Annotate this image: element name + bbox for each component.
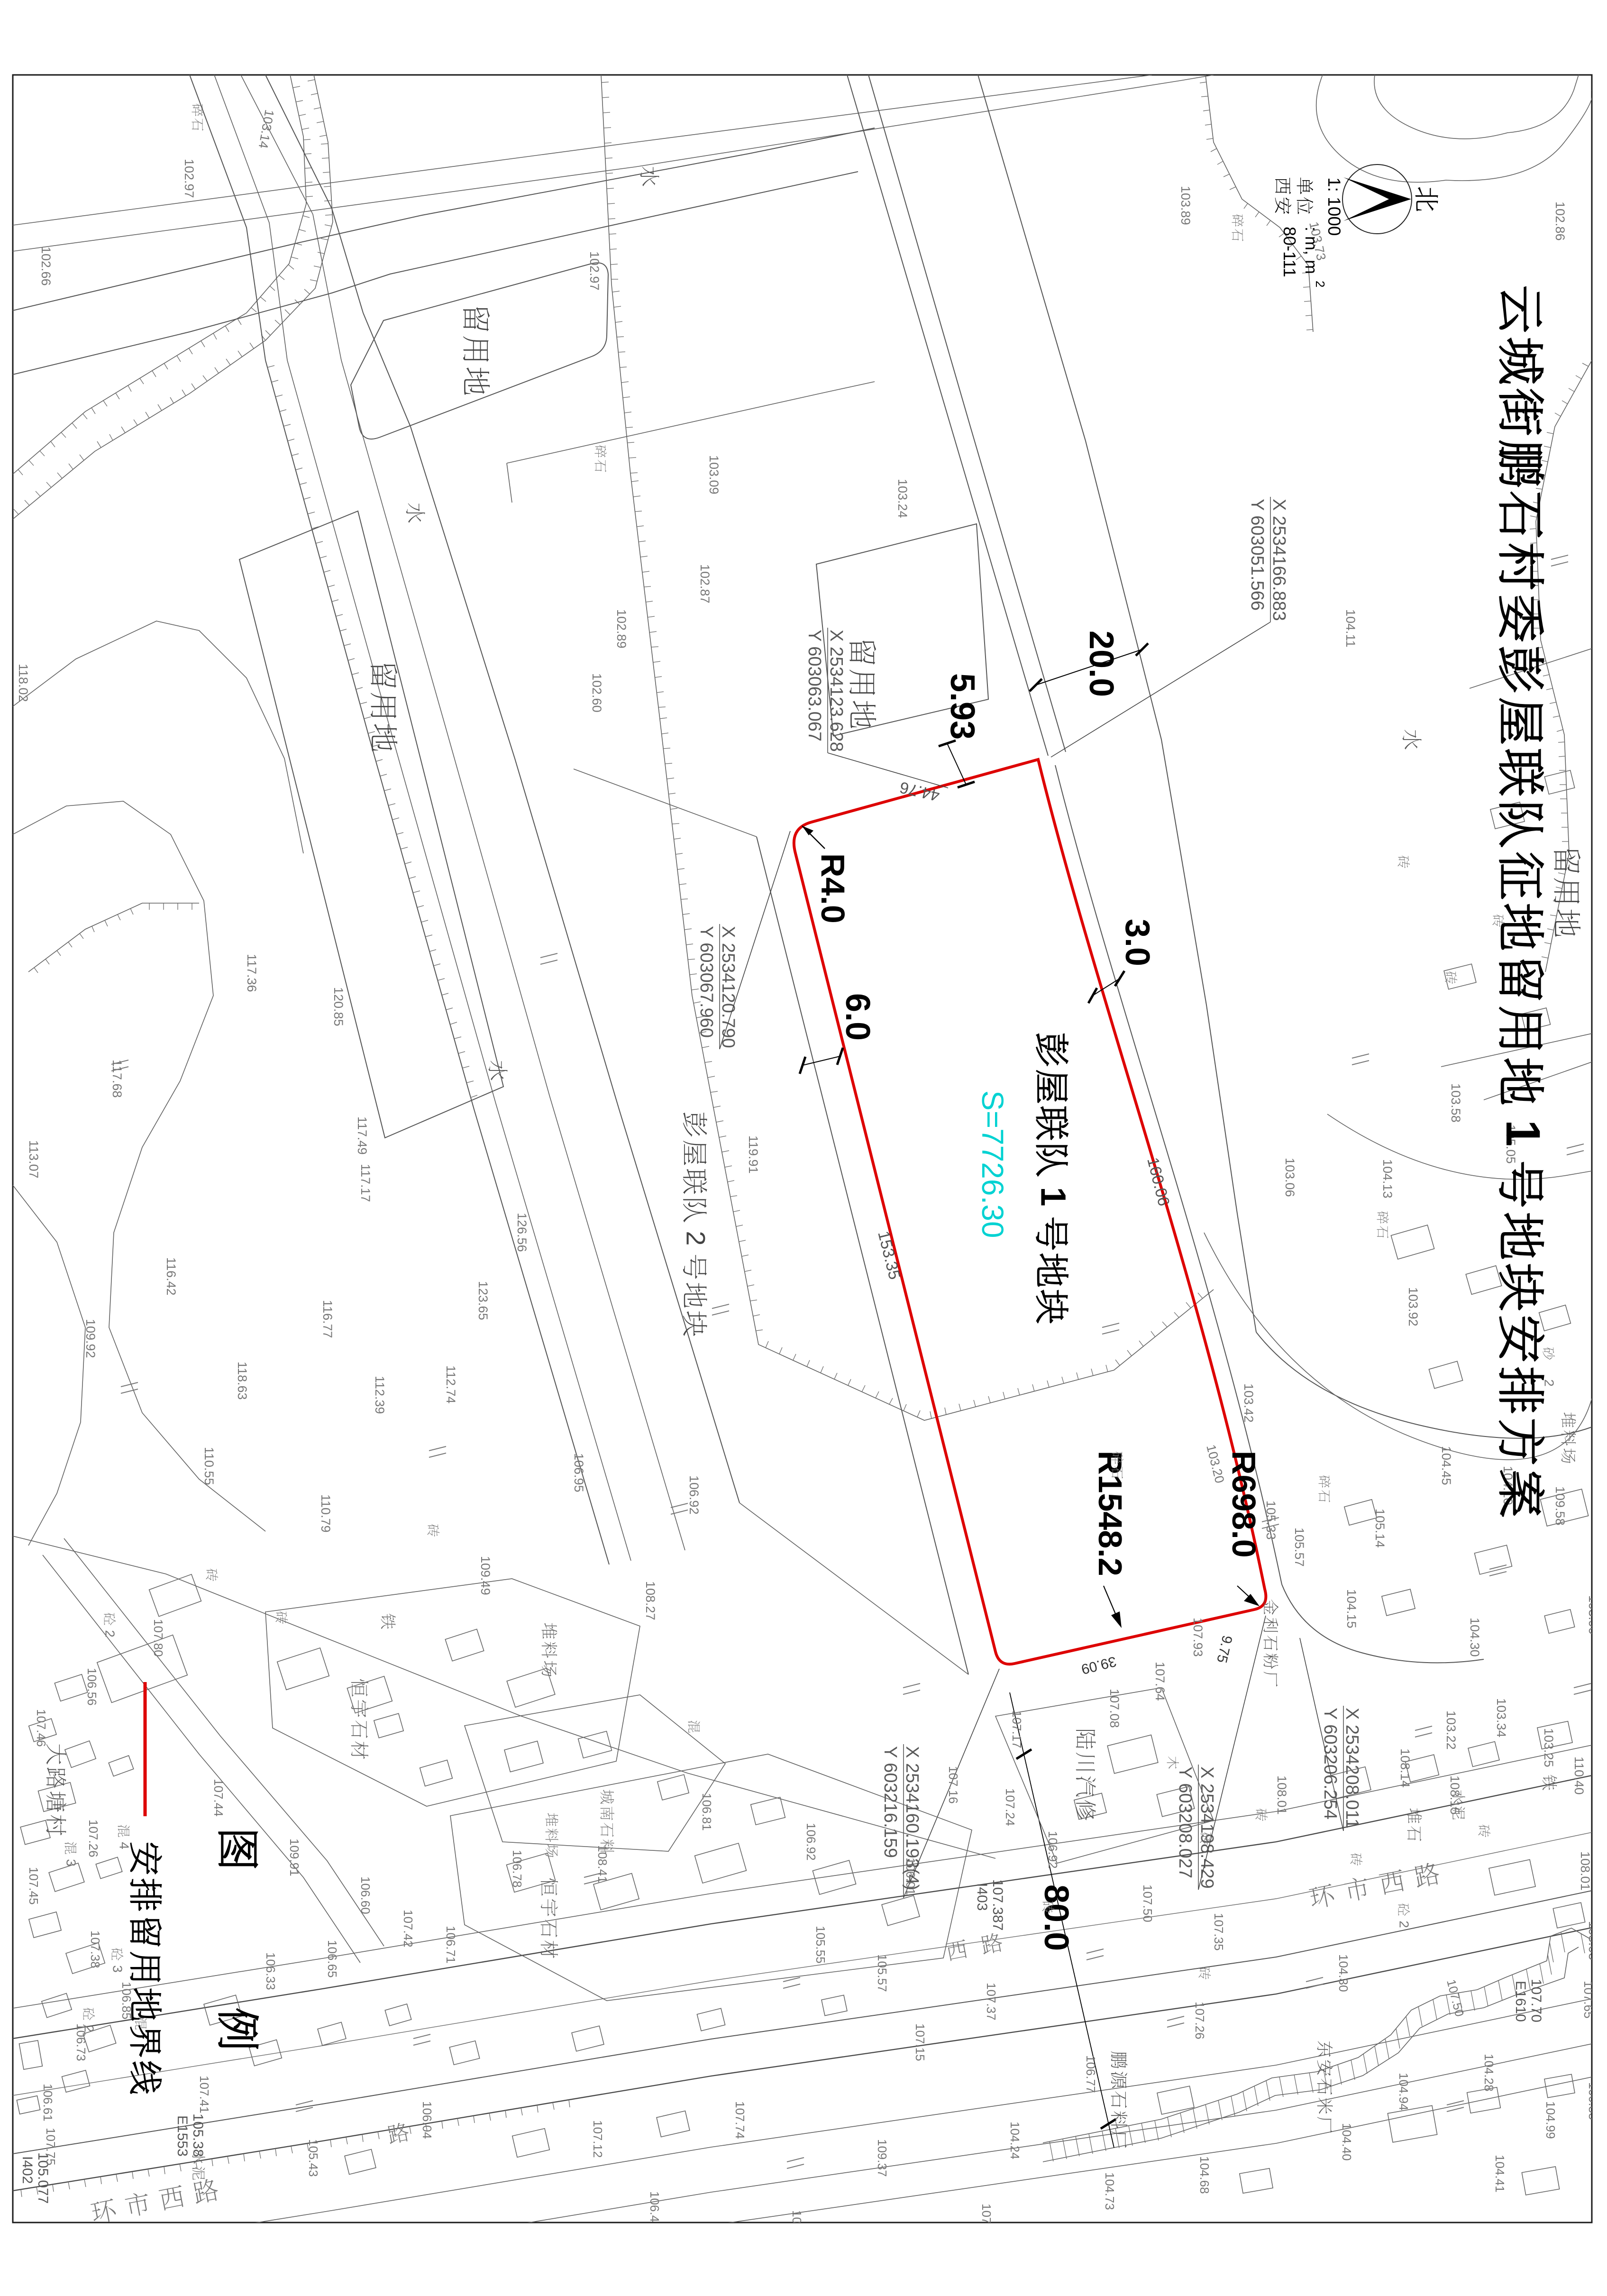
- svg-text:108.01: 108.01: [1578, 1851, 1592, 1891]
- svg-text:106.78: 106.78: [510, 1850, 524, 1888]
- svg-text:107.16: 107.16: [946, 1766, 960, 1804]
- svg-text:102.86: 102.86: [1553, 201, 1567, 241]
- svg-text:3.0: 3.0: [1118, 919, 1156, 966]
- svg-text:113.07: 113.07: [27, 1140, 41, 1179]
- svg-text:: m, m: : m, m: [1302, 227, 1321, 274]
- svg-text:3: 3: [64, 1859, 79, 1866]
- svg-text:105.43: 105.43: [306, 2139, 320, 2177]
- svg-text:107.12: 107.12: [591, 2120, 605, 2158]
- svg-text:103.09: 103.09: [707, 455, 721, 494]
- svg-text:106.01: 106.01: [904, 1857, 918, 1895]
- svg-text:102.89: 102.89: [614, 609, 629, 649]
- svg-text:102.97: 102.97: [587, 251, 602, 291]
- svg-text:118.63: 118.63: [235, 1362, 249, 1400]
- svg-text:117.68: 117.68: [110, 1060, 124, 1098]
- svg-text:103.58: 103.58: [1449, 1083, 1463, 1123]
- svg-text:118.02: 118.02: [16, 664, 30, 702]
- svg-text:104.73: 104.73: [1103, 2172, 1117, 2210]
- svg-text:107.17: 107.17: [1010, 1711, 1024, 1748]
- svg-text:105.57: 105.57: [1292, 1528, 1306, 1567]
- svg-text:107.38: 107.38: [88, 1930, 102, 1968]
- svg-text:116.42: 116.42: [164, 1257, 178, 1296]
- svg-text:106.71: 106.71: [444, 1926, 458, 1964]
- svg-text:107.35: 107.35: [1212, 1913, 1226, 1951]
- svg-text:107.74: 107.74: [733, 2101, 747, 2139]
- svg-text:104.24: 104.24: [1008, 2122, 1022, 2159]
- svg-text:104.94: 104.94: [1397, 2073, 1411, 2111]
- svg-text:106.92: 106.92: [687, 1475, 701, 1515]
- svg-text:102.97: 102.97: [182, 159, 196, 198]
- svg-text:104.40: 104.40: [1340, 2123, 1354, 2161]
- svg-text:X 2534166.883: X 2534166.883: [1269, 499, 1289, 621]
- svg-text:104.30: 104.30: [1468, 1618, 1482, 1657]
- svg-text:3: 3: [110, 1965, 125, 1973]
- svg-text:107.24: 107.24: [1003, 1788, 1017, 1826]
- svg-text:107.26: 107.26: [1193, 2002, 1207, 2040]
- svg-text:R4.0: R4.0: [814, 853, 851, 924]
- svg-text:104.45: 104.45: [1439, 1446, 1453, 1485]
- svg-text:107.37: 107.37: [984, 1983, 998, 2021]
- svg-text:Y 603063.067: Y 603063.067: [804, 630, 824, 741]
- svg-text:103.24: 103.24: [895, 479, 910, 518]
- svg-text:5.93: 5.93: [943, 673, 981, 740]
- svg-text:109.37: 109.37: [875, 2139, 889, 2177]
- svg-text:103.22: 103.22: [1444, 1711, 1458, 1750]
- svg-text:6.0: 6.0: [839, 993, 877, 1041]
- svg-text:106.60: 106.60: [358, 1876, 373, 1914]
- svg-text:103.25: 103.25: [1542, 1728, 1556, 1767]
- svg-text:105.38: 105.38: [190, 2113, 206, 2157]
- svg-text:I402: I402: [19, 2156, 35, 2184]
- svg-text:112.39: 112.39: [373, 1376, 387, 1414]
- svg-text:E1610: E1610: [1513, 1981, 1528, 2022]
- svg-text:120.85: 120.85: [331, 987, 346, 1026]
- svg-text:126.56: 126.56: [515, 1213, 529, 1252]
- svg-text:80-111: 80-111: [1280, 227, 1299, 277]
- svg-text:119.91: 119.91: [746, 1135, 760, 1174]
- svg-text:104.11: 104.11: [1343, 609, 1358, 648]
- svg-text:X 2534120.790: X 2534120.790: [718, 926, 738, 1048]
- svg-text:106.77: 106.77: [1084, 2055, 1098, 2093]
- svg-text:80.0: 80.0: [1037, 1884, 1075, 1951]
- svg-text:107.46: 107.46: [34, 1709, 48, 1747]
- svg-text:108.41: 108.41: [595, 1845, 610, 1883]
- svg-text:103.89: 103.89: [1178, 186, 1193, 225]
- svg-text:102.66: 102.66: [39, 247, 53, 286]
- svg-text:117.49: 117.49: [355, 1116, 369, 1155]
- svg-text:I403: I403: [974, 1883, 990, 1911]
- svg-text:104.41: 104.41: [1493, 2155, 1507, 2193]
- svg-text:106.81: 106.81: [700, 1793, 714, 1831]
- svg-text:107.70: 107.70: [1528, 1979, 1544, 2022]
- svg-text:103.06: 103.06: [1283, 1158, 1297, 1197]
- svg-text:1: 1: [1034, 1187, 1073, 1206]
- svg-text:107.387: 107.387: [990, 1879, 1005, 1930]
- svg-text:104.68: 104.68: [1197, 2156, 1212, 2194]
- svg-text:R1548.2: R1548.2: [1092, 1451, 1129, 1576]
- svg-text:106.95: 106.95: [572, 1453, 586, 1492]
- svg-text:108.27: 108.27: [643, 1581, 657, 1620]
- svg-text:103.42: 103.42: [1242, 1383, 1256, 1423]
- svg-text:110.79: 110.79: [319, 1494, 333, 1533]
- svg-text:107.80: 107.80: [151, 1619, 165, 1657]
- svg-text:107.44: 107.44: [211, 1779, 226, 1817]
- svg-text:106.04: 106.04: [420, 2101, 434, 2139]
- svg-text:105.55: 105.55: [813, 1926, 828, 1964]
- svg-text:109.58: 109.58: [1553, 1486, 1567, 1526]
- svg-text:107.75: 107.75: [44, 2128, 58, 2166]
- svg-text:2: 2: [103, 1630, 118, 1637]
- svg-text:108.15: 108.15: [1448, 1775, 1462, 1815]
- svg-text:2: 2: [1313, 281, 1327, 287]
- svg-text:2: 2: [82, 2025, 97, 2032]
- svg-text:110.55: 110.55: [202, 1447, 216, 1485]
- svg-text:109.91: 109.91: [287, 1839, 301, 1876]
- svg-text:107.93: 107.93: [1191, 1618, 1205, 1657]
- svg-text:104.28: 104.28: [1482, 2054, 1496, 2092]
- svg-text:108.01: 108.01: [1275, 1775, 1289, 1815]
- svg-text:S=7726.30: S=7726.30: [976, 1090, 1010, 1238]
- svg-text:107.26: 107.26: [86, 1820, 100, 1857]
- svg-text:R698.0: R698.0: [1225, 1451, 1262, 1558]
- svg-text:1: 1000: 1: 1000: [1324, 177, 1344, 236]
- svg-text:117.17: 117.17: [358, 1164, 373, 1202]
- svg-text:123.65: 123.65: [476, 1281, 490, 1320]
- svg-text:103.92: 103.92: [1406, 1287, 1420, 1326]
- svg-text:E1553: E1553: [174, 2115, 190, 2157]
- svg-text:102.60: 102.60: [590, 673, 604, 713]
- svg-text:105.57: 105.57: [875, 1954, 889, 1992]
- svg-text:106.92: 106.92: [1046, 1831, 1060, 1869]
- svg-text:104.30: 104.30: [1336, 1954, 1351, 1992]
- svg-text:106.92: 106.92: [804, 1823, 818, 1861]
- svg-text:2: 2: [681, 1231, 711, 1245]
- svg-text:108.14: 108.14: [1398, 1748, 1412, 1788]
- svg-text:107.08: 107.08: [1107, 1689, 1122, 1728]
- svg-text:106.61: 106.61: [41, 2084, 55, 2122]
- svg-text:109.92: 109.92: [83, 1319, 98, 1358]
- svg-text:112.74: 112.74: [444, 1365, 458, 1404]
- svg-text:104.15: 104.15: [1344, 1589, 1359, 1628]
- svg-text:116.77: 116.77: [320, 1300, 335, 1338]
- svg-text:107.45: 107.45: [27, 1867, 41, 1905]
- svg-text:102.87: 102.87: [698, 564, 712, 604]
- svg-text:107.50: 107.50: [1141, 1884, 1155, 1922]
- svg-text:109.49: 109.49: [478, 1556, 493, 1595]
- svg-text:107.64: 107.64: [1153, 1662, 1167, 1701]
- svg-text:107.15: 107.15: [913, 2023, 927, 2061]
- svg-text:105.33: 105.33: [1264, 1500, 1278, 1540]
- svg-text:103.34: 103.34: [1494, 1698, 1508, 1738]
- svg-text:Y 603067.960: Y 603067.960: [696, 926, 716, 1038]
- svg-text:107.41: 107.41: [197, 2076, 211, 2113]
- svg-text:104.99: 104.99: [1543, 2101, 1558, 2139]
- svg-text:X 2534123.628: X 2534123.628: [826, 630, 846, 752]
- svg-text:Y 603051.566: Y 603051.566: [1247, 499, 1267, 611]
- svg-text:20.0: 20.0: [1082, 631, 1120, 697]
- svg-text:1: 1: [1496, 1120, 1550, 1147]
- svg-text:117.36: 117.36: [245, 954, 259, 992]
- svg-text:104.13: 104.13: [1380, 1159, 1395, 1198]
- svg-text:4: 4: [117, 1842, 132, 1849]
- svg-text:107.42: 107.42: [401, 1910, 415, 1948]
- svg-text:106.56: 106.56: [85, 1668, 99, 1706]
- svg-text:106.65: 106.65: [325, 1940, 339, 1978]
- svg-text:2: 2: [1397, 1921, 1412, 1928]
- svg-text:106.33: 106.33: [264, 1952, 278, 1990]
- svg-text:110.40: 110.40: [1572, 1756, 1586, 1795]
- svg-text:Y 603208.027: Y 603208.027: [1175, 1766, 1195, 1878]
- svg-text:2: 2: [1542, 1379, 1557, 1387]
- svg-text:105.14: 105.14: [1373, 1509, 1387, 1548]
